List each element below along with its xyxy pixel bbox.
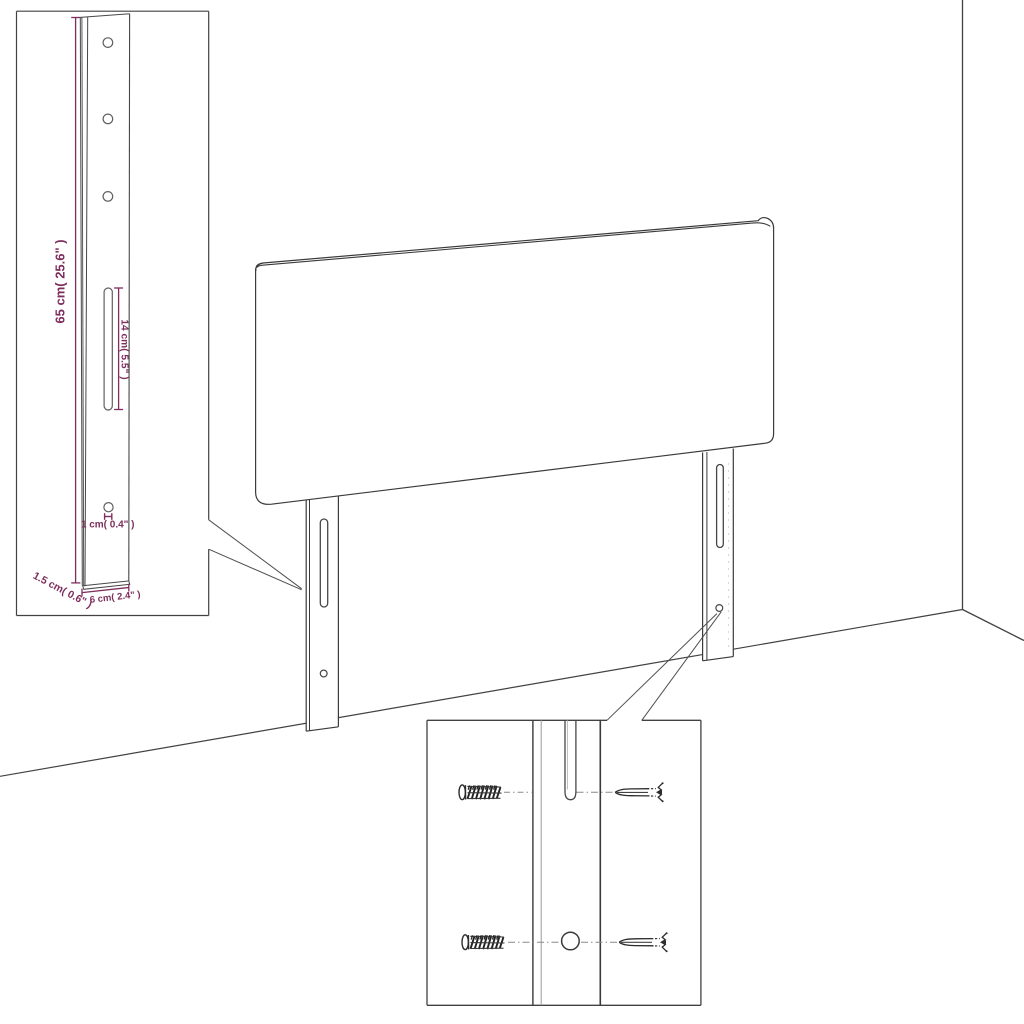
svg-text:1 cm( 0.4" ): 1 cm( 0.4" )	[81, 520, 135, 531]
svg-text:65 cm( 25.6" ): 65 cm( 25.6" )	[52, 239, 67, 323]
svg-text:14 cm( 5.5" ): 14 cm( 5.5" )	[119, 319, 130, 379]
